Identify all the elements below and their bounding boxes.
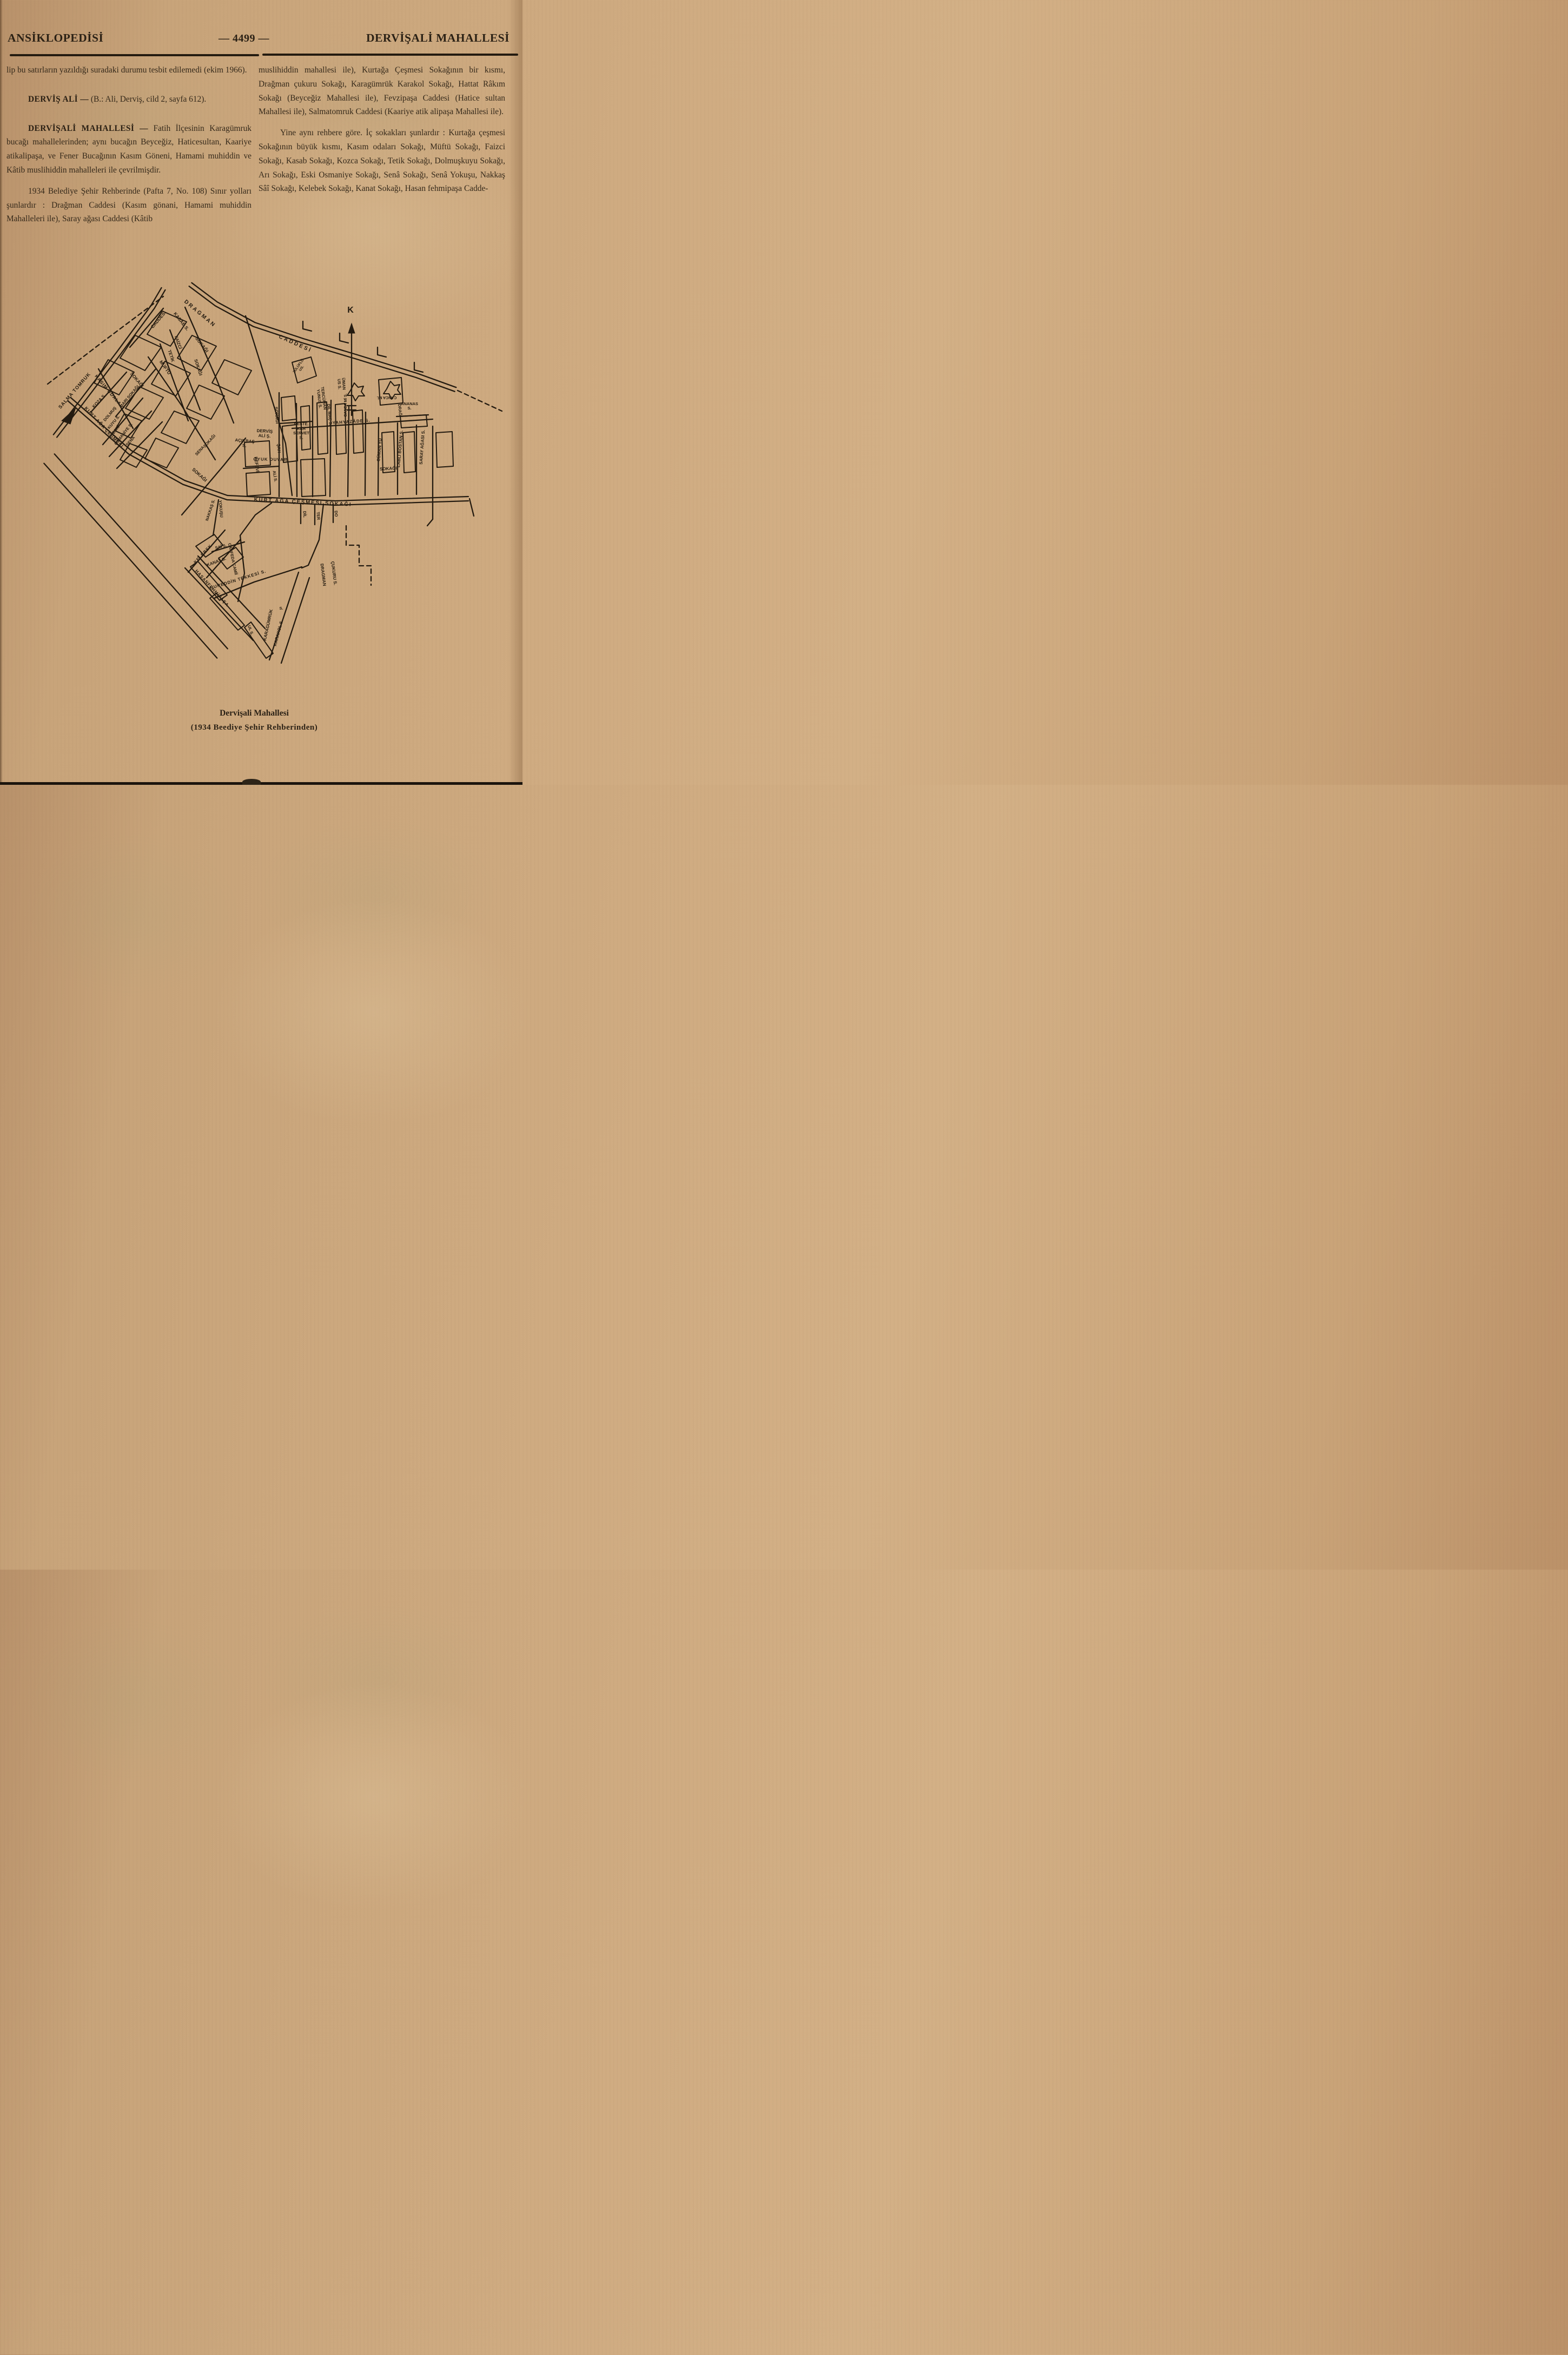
map-street-label: ÇUKURU S. (330, 561, 338, 585)
map-street (378, 347, 386, 357)
entry-headword: DERVİŞALİ MAHALLESİ — (28, 124, 148, 133)
map-block (120, 444, 147, 467)
map-block (212, 360, 252, 395)
map-street (170, 330, 200, 410)
map-street-label: CANFEDA CAMİİ (227, 543, 239, 575)
map-arrowhead (348, 323, 355, 333)
map-street-label: CANCA Mİ S. (343, 393, 348, 416)
map-street (346, 526, 371, 585)
map-street-label: DRAGMAN (319, 563, 327, 586)
map-street-label: S. (279, 606, 283, 611)
map-street (191, 283, 456, 387)
scan-edge-blob (242, 779, 261, 785)
map-block (353, 410, 363, 453)
map-street-label: CANCA Mİ. (377, 395, 397, 400)
map-caption-title: Dervişali Mahallesi (130, 709, 379, 718)
map-street-label: SOKAĞI (380, 466, 397, 472)
text-column-right: muslihiddin mahallesi ile), Kurtağa Çeşm… (259, 63, 505, 196)
map-block (403, 432, 415, 473)
map-block (317, 402, 328, 454)
map-street-label: TETİK (167, 349, 176, 363)
map-street-label: NAKKAŞ S. (204, 499, 216, 521)
map-street (414, 362, 423, 372)
map-street-label: ALİ S. (272, 470, 279, 482)
map-street-label: SARAY AĞASI S. (419, 430, 426, 465)
map-street (458, 391, 502, 411)
map-street (238, 535, 244, 601)
map-street-label: KOZA S. (91, 393, 107, 409)
map-street-label: DİL (302, 511, 307, 518)
paragraph-rehber: 1934 Belediye Şehir Rehberinde (Pafta 7,… (6, 184, 252, 226)
map-block (246, 472, 270, 496)
running-header: ANSİKLOPEDİSİ — 4499 — DERVİŞALİ MAHALLE… (8, 31, 512, 50)
map-street (189, 286, 455, 392)
map-street-label: ŞAH (276, 444, 281, 453)
map-street (365, 412, 366, 495)
map-street-label: ANANASS. (401, 401, 418, 411)
map-street-label: SOKAĞI (274, 407, 280, 424)
entry-headword: DERVİŞ ALİ — (28, 95, 89, 104)
map-street (269, 572, 299, 660)
map-street-label: ZÜLÜFLÜUS. (292, 358, 308, 376)
district-map: KDRAGMANCADDESİKASAB S.SOKAĞISOKAĞIFAİZC… (0, 281, 522, 699)
paragraph-continuation: muslihiddin mahallesi ile), Kurtağa Çeşm… (259, 63, 505, 119)
map-block (281, 396, 296, 421)
district-map-figure: KDRAGMANCADDESİKASAB S.SOKAĞISOKAĞIFAİZC… (0, 281, 522, 699)
map-street (303, 321, 312, 331)
map-street-label: HASANFEHMİPAŞA (194, 568, 230, 607)
map-caption: Dervişali Mahallesi (1934 Beediye Şehir … (130, 709, 379, 732)
map-block (145, 438, 178, 468)
scan-edge-bar (0, 782, 522, 785)
map-street-label: ÜMANUS S. (336, 378, 347, 391)
map-street-label: KARAKOL S. (273, 619, 285, 646)
map-street (246, 316, 292, 495)
map-street-label: KURT AĞA ÇEŞMESİ SOKAĞI (254, 496, 352, 507)
map-street-label: CADDESİ (150, 310, 167, 329)
map-street-label: K (347, 306, 354, 315)
map-caption-source: (1934 Beediye Şehir Rehberinden) (130, 723, 379, 732)
map-street (240, 503, 272, 535)
map-street-label: KARAGÜMRÜK (262, 608, 274, 641)
map-street (427, 519, 433, 526)
map-block (210, 593, 244, 630)
mosque-icon (347, 383, 365, 401)
text-column-left: lip bu satırların yazıldığı suradaki dur… (6, 63, 252, 226)
map-street-label: SOKAĞI (194, 335, 210, 353)
paragraph-ic-sokaklar: Yine aynı rehbere göre. İç sokakları şun… (259, 126, 505, 196)
map-street-label: TER (315, 512, 321, 520)
map-street (340, 333, 348, 343)
entry-dervisali-mahallesi: DERVİŞALİ MAHALLESİ — Fatih İlçesinin Ka… (6, 122, 252, 177)
map-street (281, 578, 309, 663)
map-street (469, 499, 474, 516)
header-rule-left (10, 54, 259, 56)
map-street-label: YOKUŞU (218, 500, 224, 518)
map-block (436, 432, 453, 467)
map-block (161, 411, 199, 444)
map-street-label: CÜMAN YU (376, 438, 383, 462)
map-street-label: DRAĞ (397, 403, 403, 416)
header-rule-right (262, 54, 518, 56)
map-street-label: OYUK DUVAR (253, 457, 287, 462)
header-title: ANSİKLOPEDİSİ (8, 31, 103, 45)
map-street-label: DERVİŞALİ Ş. (256, 428, 273, 439)
map-street-label: SALMA TOMRUK (57, 371, 92, 409)
scanned-encyclopedia-page: { "header": { "left": "ANSİKLOPEDİSİ", "… (0, 0, 522, 785)
map-street-label: SOKAĞI (191, 466, 208, 483)
page-number: — 4499 — (219, 32, 269, 45)
map-block (120, 335, 161, 371)
paragraph-continuation: lip bu satırların yazıldığı suradaki dur… (6, 63, 252, 77)
map-street (44, 464, 217, 658)
map-street-label: SOKAĞI (202, 433, 216, 448)
entry-dervis-ali: DERVİŞ ALİ — (B.: Ali, Derviş, cild 2, s… (6, 92, 252, 107)
map-street-label: DO (334, 511, 339, 517)
header-article-name: DERVİŞALİ MAHALLESİ (366, 31, 510, 45)
